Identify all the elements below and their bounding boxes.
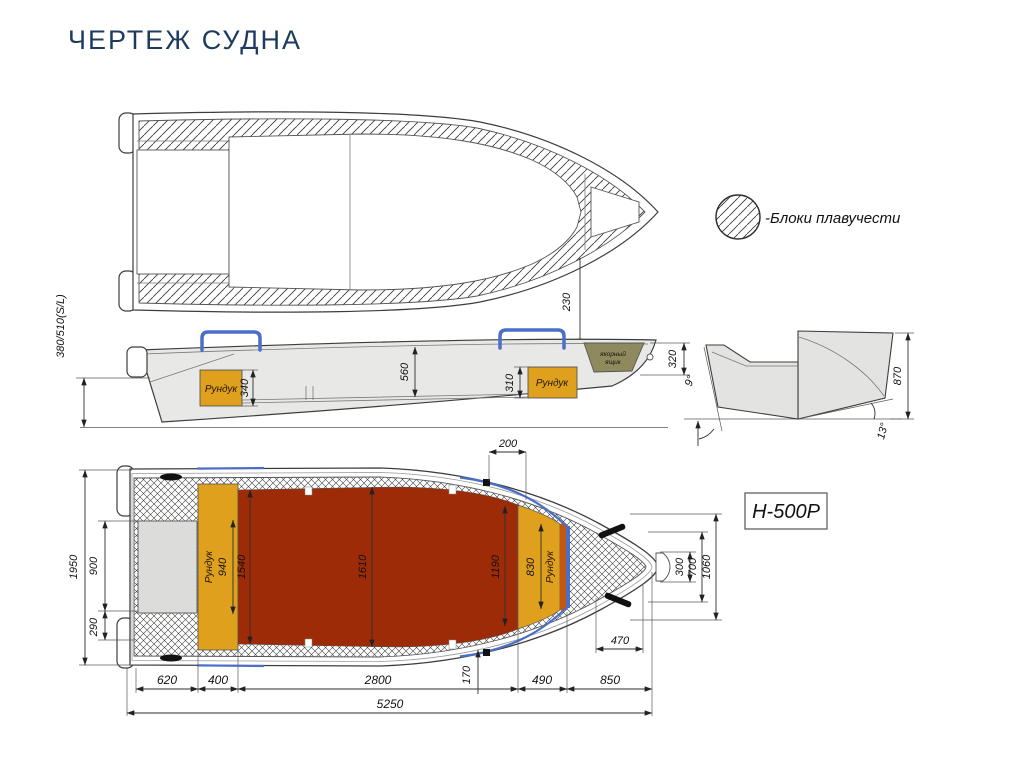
deck-fitting — [483, 649, 490, 656]
dim-320-label: 320 — [667, 349, 679, 368]
dim-freeboard-label: 380/510(S/L) — [55, 294, 67, 358]
dim-560-label: 560 — [399, 362, 411, 381]
stern-cleat — [160, 655, 182, 662]
dim-freeboard-lines — [76, 378, 150, 427]
ship-drawing-canvas: ЧЕРТЕЖ СУДНА 230 -Блоки плавучести — [0, 0, 1015, 764]
dim-1540-label: 1540 — [236, 554, 248, 579]
dim-850-label: 850 — [600, 673, 620, 687]
dim-300-label: 300 — [674, 557, 686, 576]
motorwell-deck — [138, 521, 197, 613]
model-badge: Н-500Р — [745, 493, 827, 529]
dim-700-label: 700 — [687, 557, 699, 576]
runduk-bow-face — [560, 524, 566, 610]
bottom-view: Рундук 940 1540 1610 1190 830 Рундук 195… — [68, 438, 722, 694]
model-badge-label: Н-500Р — [752, 501, 820, 523]
motor-bracket — [127, 347, 147, 377]
dim-870-label: 870 — [892, 366, 904, 385]
dim-1610-label: 1610 — [357, 554, 369, 579]
section-view: 870 13° 9° — [683, 331, 914, 446]
bow-roller-mount — [656, 553, 670, 581]
dim-400-label: 400 — [208, 673, 228, 687]
dim-230-label: 230 — [561, 292, 573, 312]
flare-arc — [699, 429, 714, 439]
page-title: ЧЕРТЕЖ СУДНА — [68, 25, 302, 55]
dim-470-label: 470 — [611, 635, 630, 647]
gunwale-trim-blue — [197, 468, 264, 469]
dim-200-label: 200 — [498, 438, 518, 450]
dim-1060-label: 1060 — [701, 554, 713, 579]
dim-310-label: 310 — [504, 373, 516, 392]
dim-290-label: 290 — [88, 617, 100, 637]
runduk-aft-label: Рундук — [205, 384, 239, 395]
dim-830-label: 830 — [525, 557, 537, 576]
buoyancy-block-icon — [716, 195, 760, 239]
cockpit-sole — [238, 487, 518, 647]
stern-cleat — [160, 474, 182, 481]
legend-label: -Блоки плавучести — [765, 210, 901, 227]
dim-900-label: 900 — [88, 556, 100, 575]
runduk-fore-label: Рундук — [536, 378, 570, 389]
anchor-box-label2: ящик — [604, 359, 622, 366]
bow-bulkhead-trim — [566, 526, 570, 608]
legend: -Блоки плавучести — [716, 195, 901, 239]
dim-5250-label: 5250 — [377, 697, 404, 711]
dim-620-label: 620 — [157, 673, 177, 687]
top-view: 230 — [119, 112, 658, 346]
runduk-bow-label: Рундук — [545, 550, 556, 584]
angle-9-label: 9° — [683, 373, 698, 388]
dim-1190-label: 1190 — [490, 554, 502, 579]
side-view: Рундук 340 Рундук 310 560 якорный ящик 3… — [55, 294, 690, 428]
dim-170-label: 170 — [461, 665, 473, 684]
runduk-stern-label: Рундук — [204, 550, 215, 584]
section-half — [706, 345, 798, 419]
dim-2800-label: 2800 — [364, 673, 392, 687]
angle-13-label: 13° — [875, 421, 891, 441]
dim-490-label: 490 — [532, 673, 552, 687]
deadrise-arc — [871, 403, 875, 419]
gunwale-trim-blue — [197, 665, 264, 666]
dim-1950-label: 1950 — [68, 554, 80, 579]
dim-340-label: 340 — [239, 378, 251, 397]
transom-half — [798, 331, 893, 419]
motorwell-plan — [137, 150, 229, 274]
anchor-box-label1: якорный — [599, 350, 626, 358]
drawing-page: ЧЕРТЕЖ СУДНА 230 -Блоки плавучести — [0, 0, 1015, 764]
dim-940-label: 940 — [217, 557, 229, 576]
bow-eye — [647, 354, 653, 360]
